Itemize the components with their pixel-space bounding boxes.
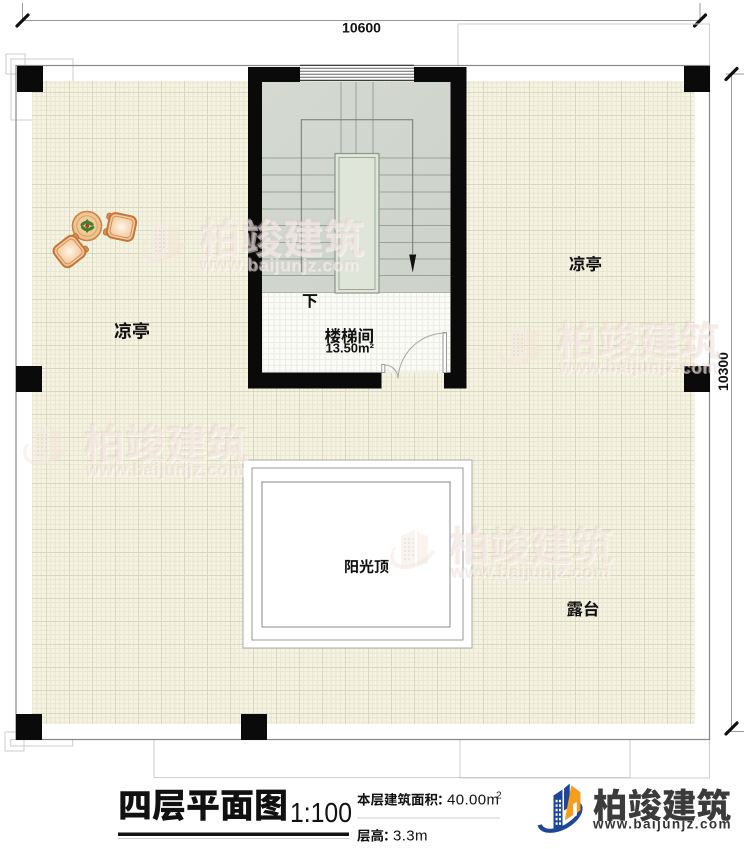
svg-text:40.00m: 40.00m xyxy=(447,792,499,809)
svg-text:www.baijunjz.com: www.baijunjz.com xyxy=(85,460,245,480)
svg-text:www.baijunjz.com: www.baijunjz.com xyxy=(592,817,732,832)
svg-text:13.50m²: 13.50m² xyxy=(326,341,375,356)
svg-text:www.baijunjz.com: www.baijunjz.com xyxy=(450,562,610,582)
svg-text:3.3m: 3.3m xyxy=(393,828,428,845)
svg-text:10600: 10600 xyxy=(342,20,381,36)
svg-text:1:100: 1:100 xyxy=(290,797,352,828)
svg-text:www.baijunjz.com: www.baijunjz.com xyxy=(199,255,359,275)
svg-text:www.baijunjz.com: www.baijunjz.com xyxy=(558,357,718,377)
svg-text:2: 2 xyxy=(496,791,502,802)
